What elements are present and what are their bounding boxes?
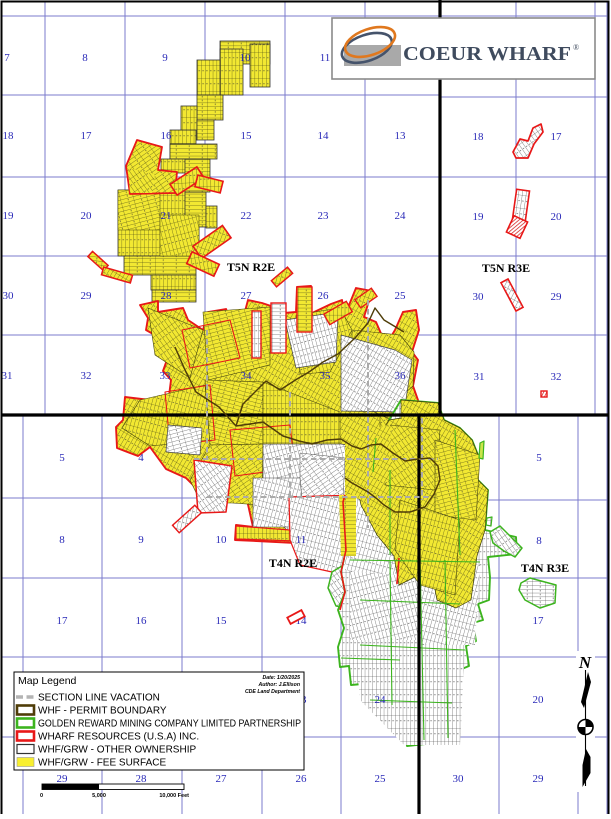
svg-text:29: 29: [81, 290, 93, 302]
svg-text:Map Legend: Map Legend: [18, 675, 77, 687]
svg-text:9: 9: [162, 52, 168, 64]
svg-text:24: 24: [395, 210, 407, 222]
svg-text:WHF/GRW - OTHER OWNERSHIP: WHF/GRW - OTHER OWNERSHIP: [38, 745, 196, 756]
svg-text:10,000 Feet: 10,000 Feet: [159, 793, 189, 799]
svg-text:SECTION LINE VACATION: SECTION LINE VACATION: [38, 693, 160, 704]
svg-text:T5N R2E: T5N R2E: [227, 260, 275, 274]
svg-text:26: 26: [296, 773, 308, 785]
svg-text:17: 17: [551, 131, 563, 143]
svg-text:24: 24: [375, 694, 387, 706]
svg-text:8: 8: [59, 534, 65, 546]
svg-text:17: 17: [533, 615, 545, 627]
svg-text:32: 32: [551, 371, 562, 383]
svg-text:20: 20: [551, 211, 563, 223]
svg-text:31: 31: [474, 371, 485, 383]
svg-text:32: 32: [81, 370, 92, 382]
svg-text:Author: J.Ellison: Author: J.Ellison: [258, 682, 301, 688]
svg-text:16: 16: [136, 615, 148, 627]
svg-text:23: 23: [318, 210, 330, 222]
svg-text:30: 30: [453, 773, 465, 785]
svg-text:7: 7: [4, 52, 10, 64]
svg-text:25: 25: [395, 290, 407, 302]
svg-text:N: N: [578, 653, 592, 672]
svg-text:COEUR WHARF: COEUR WHARF: [403, 43, 571, 65]
svg-text:21: 21: [161, 210, 172, 222]
svg-text:Date: 1/20/2025: Date: 1/20/2025: [263, 675, 301, 681]
svg-text:8: 8: [82, 52, 88, 64]
svg-text:10: 10: [216, 534, 228, 546]
svg-text:16: 16: [161, 130, 173, 142]
svg-text:10: 10: [240, 52, 252, 64]
svg-text:WHARF RESOURCES (U.S.A) INC.: WHARF RESOURCES (U.S.A) INC.: [38, 732, 199, 743]
svg-text:T4N R2E: T4N R2E: [269, 556, 317, 570]
svg-text:11: 11: [320, 52, 331, 64]
svg-text:14: 14: [318, 130, 330, 142]
svg-text:20: 20: [81, 210, 93, 222]
svg-text:30: 30: [473, 291, 485, 303]
svg-text:34: 34: [241, 370, 253, 382]
svg-text:GOLDEN REWARD MINING COMPANY L: GOLDEN REWARD MINING COMPANY LIMITED PAR…: [38, 719, 301, 730]
svg-text:18: 18: [473, 131, 485, 143]
svg-text:15: 15: [216, 615, 228, 627]
svg-text:15: 15: [241, 130, 253, 142]
svg-text:25: 25: [375, 773, 387, 785]
svg-text:29: 29: [551, 291, 563, 303]
svg-text:17: 17: [81, 130, 93, 142]
svg-text:11: 11: [296, 534, 307, 546]
svg-text:36: 36: [395, 370, 407, 382]
svg-text:8: 8: [536, 535, 542, 547]
svg-text:WHF/GRW - FEE SURFACE: WHF/GRW - FEE SURFACE: [38, 758, 166, 769]
svg-text:31: 31: [2, 370, 13, 382]
svg-text:0: 0: [40, 793, 43, 799]
svg-text:29: 29: [57, 773, 69, 785]
svg-text:29: 29: [533, 773, 545, 785]
svg-text:30: 30: [3, 290, 15, 302]
svg-text:27: 27: [241, 290, 253, 302]
svg-text:®: ®: [573, 43, 579, 52]
svg-text:CDE Land Department: CDE Land Department: [245, 689, 300, 695]
svg-text:35: 35: [320, 370, 332, 382]
svg-text:33: 33: [160, 370, 172, 382]
svg-text:13: 13: [395, 130, 407, 142]
svg-text:26: 26: [318, 290, 330, 302]
svg-text:T5N R3E: T5N R3E: [482, 261, 530, 275]
svg-text:5: 5: [59, 452, 65, 464]
svg-text:28: 28: [136, 773, 148, 785]
svg-text:9: 9: [138, 534, 144, 546]
svg-text:19: 19: [3, 210, 15, 222]
svg-text:19: 19: [473, 211, 485, 223]
svg-text:4: 4: [138, 452, 144, 464]
svg-text:20: 20: [533, 694, 545, 706]
svg-text:22: 22: [241, 210, 252, 222]
svg-text:17: 17: [57, 615, 69, 627]
svg-text:28: 28: [161, 290, 173, 302]
svg-text:T4N R3E: T4N R3E: [521, 561, 569, 575]
svg-text:WHF - PERMIT BOUNDARY: WHF - PERMIT BOUNDARY: [38, 706, 167, 717]
svg-text:5,000: 5,000: [92, 793, 106, 799]
svg-text:18: 18: [3, 130, 15, 142]
svg-text:27: 27: [216, 773, 228, 785]
svg-text:5: 5: [536, 452, 542, 464]
